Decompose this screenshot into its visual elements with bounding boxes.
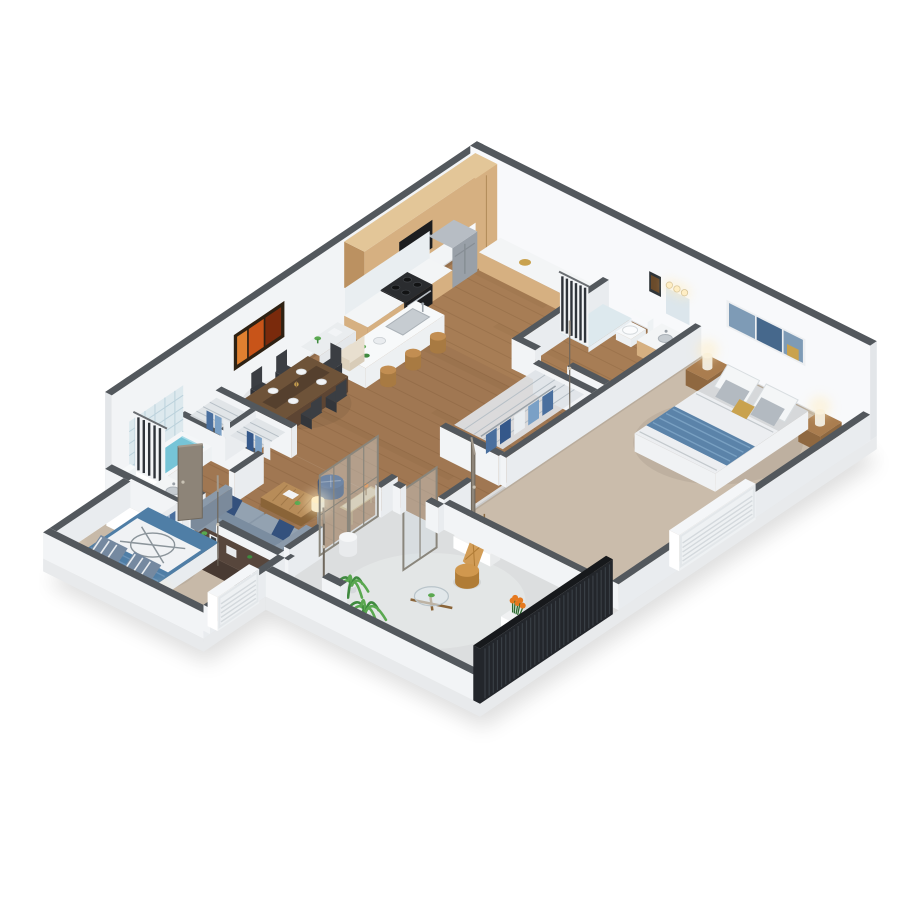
near-walls-part: [208, 592, 218, 631]
entry-part: [393, 485, 401, 515]
master-bedroom-part: [809, 396, 831, 418]
linen-closets-part: [215, 415, 222, 436]
coffee-table-part: [295, 501, 301, 505]
linen-closets-part: [291, 424, 297, 458]
entry-part: [438, 504, 444, 534]
bar-stools-part: [380, 365, 396, 374]
exterior-wall-north-east-part: [870, 341, 877, 441]
flower-pot-part: [517, 597, 523, 603]
interior-doors-part: [473, 486, 476, 489]
interior-doors-part: [322, 545, 325, 548]
master-bedroom-part: [696, 340, 718, 362]
bathroom-2-part: [172, 482, 175, 485]
dining-table-part: [268, 388, 278, 394]
dresser-part: [247, 555, 252, 559]
kitchen-part: [392, 285, 400, 290]
near-walls-part: [612, 581, 619, 610]
linen-closets-part: [207, 410, 214, 431]
kitchen-part: [402, 290, 410, 295]
flower-pot-part: [520, 603, 526, 609]
kitchen-part: [413, 282, 421, 287]
dining-table-part: [316, 379, 326, 385]
floorplan-3d-render: [0, 0, 900, 900]
entry-part: [400, 485, 406, 515]
kitchen-island-part: [421, 302, 424, 305]
privacy-fence-part: [473, 645, 480, 703]
linen-closets-part: [247, 431, 254, 452]
kitchen-island-part: [374, 337, 386, 344]
dining-table-part: [288, 398, 298, 404]
dining-table-part: [296, 369, 306, 375]
entry-part: [339, 532, 357, 542]
kitchen-part: [403, 277, 411, 282]
bathroom-1-part: [623, 326, 638, 334]
patio-glass-table-part: [428, 593, 435, 597]
bar-stools-part: [405, 349, 421, 358]
interior-walls-central-part: [500, 455, 506, 488]
interior-doors-part: [216, 523, 219, 526]
kitchen-part: [519, 259, 531, 266]
linen-closets-part: [264, 439, 271, 460]
bathroom-1-mirror-and-lights-part: [677, 286, 691, 300]
interior-doors-part: [568, 367, 571, 370]
floorplan-stage: [0, 0, 900, 900]
near-walls-part: [669, 530, 679, 571]
bathroom-1-part: [665, 330, 668, 333]
interior-doors-part: [181, 481, 184, 484]
interior-doors-part: [323, 508, 324, 524]
linen-closets-part: [223, 419, 230, 440]
bar-stools-part: [430, 332, 446, 341]
